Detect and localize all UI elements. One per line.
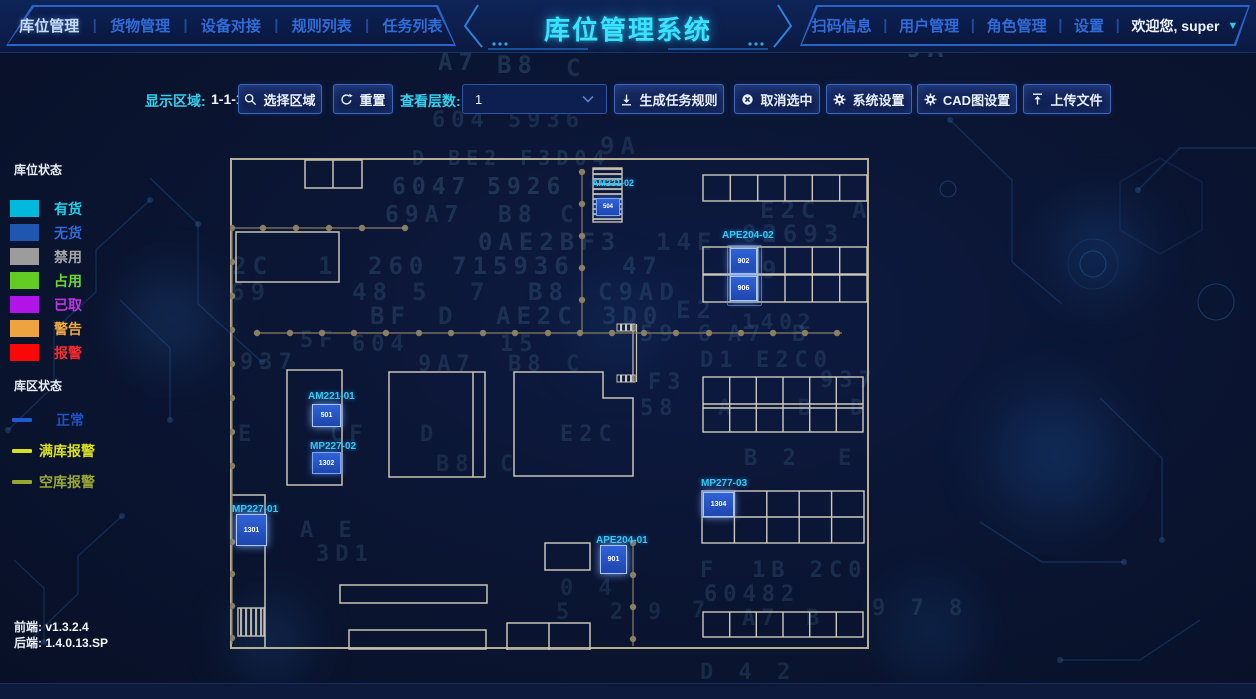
generate-task-rules-button[interactable]: 生成任务规则 <box>614 84 724 114</box>
zone-status-row: 空库报警 <box>12 476 95 488</box>
nav-item-device-docking[interactable]: 设备对接 <box>201 15 261 36</box>
storage-cell[interactable]: 1304 <box>703 492 734 517</box>
slot-status-row: 警告 <box>10 320 82 337</box>
status-label: 有货 <box>54 199 82 219</box>
nav-divider: | <box>1058 17 1062 34</box>
zone-status-row: 正常 <box>12 414 95 426</box>
status-label: 警告 <box>54 319 82 339</box>
nav-divider: | <box>274 17 278 34</box>
nav-item-scan-info[interactable]: 扫码信息 <box>812 15 872 36</box>
backend-version: 后端: 1.4.0.13.SP <box>14 634 108 651</box>
footer-bar <box>0 683 1256 699</box>
chevron-down-icon <box>582 95 594 103</box>
cancel-selection-label: 取消选中 <box>760 90 812 109</box>
slot-status-row: 禁用 <box>10 248 82 265</box>
storage-cell[interactable]: 1302 <box>312 452 341 474</box>
storage-cell[interactable]: 504 <box>596 198 620 216</box>
chevron-down-icon: ▼ <box>1227 20 1238 32</box>
display-area-label: 显示区域: <box>145 91 206 111</box>
unit-label: AM221-02 <box>592 178 634 188</box>
layer-count-label: 查看层数: <box>400 91 461 111</box>
slot-status-row: 已取 <box>10 296 82 313</box>
nav-item-user-management[interactable]: 用户管理 <box>899 15 959 36</box>
nav-right-panel: 扫码信息 | 用户管理 | 角色管理 | 设置 | 欢迎您, super ▼ <box>800 5 1250 46</box>
app-title-box: 库位管理系统 <box>458 0 798 52</box>
upload-file-label: 上传文件 <box>1050 90 1102 109</box>
status-label: 报警 <box>54 343 82 363</box>
status-swatch <box>10 224 39 241</box>
nav-divider: | <box>971 17 975 34</box>
upload-icon <box>1031 93 1044 106</box>
status-swatch <box>10 344 39 361</box>
floor-plan-canvas[interactable]: AM221-02 504 APE204-02 902 906 AM221-01 … <box>230 158 870 650</box>
status-swatch <box>10 200 39 217</box>
welcome-text: 欢迎您, super <box>1132 16 1220 36</box>
slot-status-row: 有货 <box>10 200 82 217</box>
zone-swatch <box>12 480 32 484</box>
nav-divider: | <box>183 17 187 34</box>
cancel-circle-icon <box>741 93 754 106</box>
storage-cell[interactable]: 501 <box>312 404 341 427</box>
gear-icon <box>833 93 846 106</box>
nav-item-storage-management[interactable]: 库位管理 <box>19 15 79 36</box>
zone-swatch <box>12 449 32 453</box>
storage-cell[interactable]: 901 <box>600 545 627 574</box>
select-area-button[interactable]: 选择区域 <box>238 84 322 114</box>
download-icon <box>620 93 633 106</box>
storage-cell[interactable]: 1301 <box>236 514 267 546</box>
nav-item-settings[interactable]: 设置 <box>1074 15 1104 36</box>
cancel-selection-button[interactable]: 取消选中 <box>734 84 820 114</box>
upload-file-button[interactable]: 上传文件 <box>1023 84 1111 114</box>
system-settings-button[interactable]: 系统设置 <box>826 84 912 114</box>
zone-label: 满库报警 <box>39 441 95 461</box>
cad-settings-label: CAD图设置 <box>943 90 1010 109</box>
zone-swatch <box>12 418 32 422</box>
status-swatch <box>10 248 39 265</box>
gear-icon <box>924 93 937 106</box>
unit-label: MP227-02 <box>310 441 356 452</box>
zone-status-title: 库区状态 <box>14 377 62 394</box>
storage-cell[interactable]: 906 <box>730 276 757 301</box>
unit-label: AM221-01 <box>308 391 355 402</box>
nav-item-role-management[interactable]: 角色管理 <box>987 15 1047 36</box>
nav-left-panel: 库位管理 | 货物管理 | 设备对接 | 规则列表 | 任务列表 <box>6 5 456 46</box>
system-settings-label: 系统设置 <box>852 90 904 109</box>
app-window: 6132C0415F3604CF5F 60A7B8C9AEC0E2C046045… <box>0 0 1256 699</box>
search-icon <box>244 93 257 106</box>
slot-status-legend: 有货 无货 禁用 占用 已取 警告 报警 <box>10 200 82 368</box>
zone-label: 正常 <box>56 410 84 430</box>
unit-label: APE204-02 <box>722 230 774 241</box>
slot-status-row: 占用 <box>10 272 82 289</box>
generate-task-rules-label: 生成任务规则 <box>639 90 717 109</box>
slot-status-title: 库位状态 <box>14 161 62 178</box>
user-menu[interactable]: 欢迎您, super ▼ <box>1132 16 1239 36</box>
zone-label: 空库报警 <box>39 472 95 492</box>
status-label: 禁用 <box>54 247 82 267</box>
page-title: 库位管理系统 <box>458 10 798 47</box>
zone-status-legend: 正常 满库报警 空库报警 <box>12 414 95 507</box>
nav-item-rule-list[interactable]: 规则列表 <box>292 15 352 36</box>
status-swatch <box>10 296 39 313</box>
nav-item-task-list[interactable]: 任务列表 <box>383 15 443 36</box>
bg-glow <box>860 560 1000 699</box>
nav-right-items: 扫码信息 | 用户管理 | 角色管理 | 设置 | 欢迎您, super ▼ <box>800 5 1250 46</box>
nav-divider: | <box>365 17 369 34</box>
status-label: 占用 <box>54 271 82 291</box>
nav-left-items: 库位管理 | 货物管理 | 设备对接 | 规则列表 | 任务列表 <box>6 5 456 46</box>
reset-label: 重置 <box>359 90 385 109</box>
bg-glow <box>100 250 240 390</box>
nav-divider: | <box>93 17 97 34</box>
nav-divider: | <box>1116 17 1120 34</box>
select-area-label: 选择区域 <box>263 90 315 109</box>
bg-glow <box>1030 180 1170 320</box>
layer-select-value: 1 <box>475 92 482 107</box>
slot-status-row: 报警 <box>10 344 82 361</box>
nav-divider: | <box>883 17 887 34</box>
refresh-icon <box>340 93 353 106</box>
header-bar: 库位管理 | 货物管理 | 设备对接 | 规则列表 | 任务列表 <box>0 0 1256 53</box>
status-swatch <box>10 272 39 289</box>
cad-settings-button[interactable]: CAD图设置 <box>917 84 1017 114</box>
reset-button[interactable]: 重置 <box>333 84 393 114</box>
nav-item-cargo-management[interactable]: 货物管理 <box>110 15 170 36</box>
frontend-version: 前端: v1.3.2.4 <box>14 618 89 635</box>
bg-glow <box>960 360 1150 550</box>
status-swatch <box>10 320 39 337</box>
layer-select[interactable]: 1 <box>462 84 607 114</box>
slot-status-row: 无货 <box>10 224 82 241</box>
zone-status-row: 满库报警 <box>12 445 95 457</box>
unit-label: MP277-03 <box>701 478 747 489</box>
storage-cell[interactable]: 902 <box>730 248 757 274</box>
status-label: 已取 <box>54 295 82 315</box>
status-label: 无货 <box>54 223 82 243</box>
